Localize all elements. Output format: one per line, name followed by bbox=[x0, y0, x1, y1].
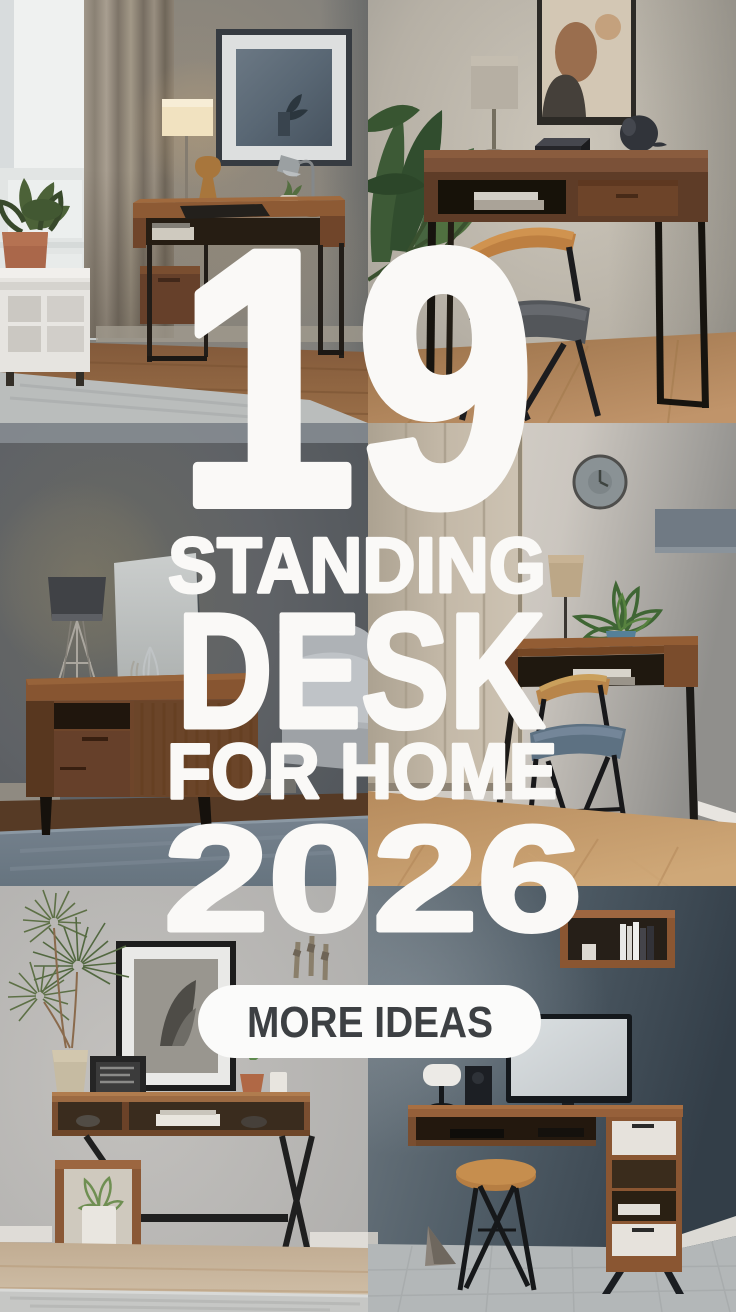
svg-text:2026: 2026 bbox=[164, 795, 582, 962]
svg-text:MORE IDEAS: MORE IDEAS bbox=[247, 998, 493, 1047]
